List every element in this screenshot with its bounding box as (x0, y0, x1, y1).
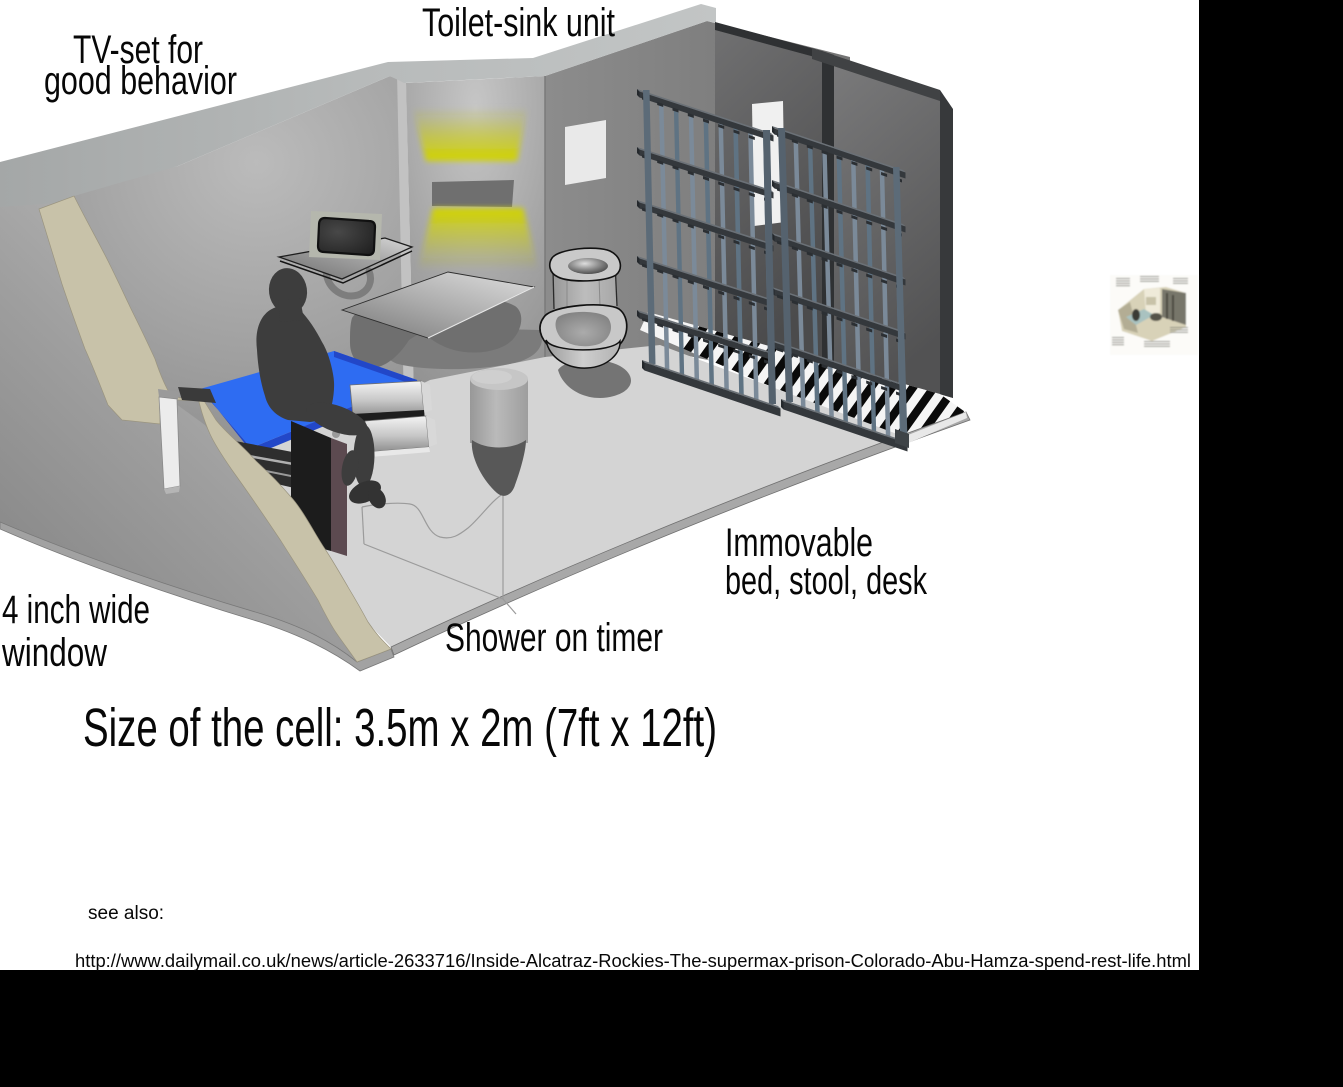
svg-text:4 inch wide: 4 inch wide (2, 588, 150, 632)
svg-text:good behavior: good behavior (44, 59, 237, 103)
svg-text:Shower on timer: Shower on timer (445, 616, 663, 660)
svg-text:Toilet-sink unit: Toilet-sink unit (422, 1, 615, 45)
svg-text:bed, stool, desk: bed, stool, desk (725, 559, 928, 603)
svg-text:http://www.dailymail.co.uk/new: http://www.dailymail.co.uk/news/article-… (75, 951, 1191, 971)
svg-text:Size of the cell: 3.5m x 2m (7: Size of the cell: 3.5m x 2m (7ft x 12ft) (83, 698, 717, 758)
svg-text:window: window (1, 631, 107, 675)
svg-text:see also:: see also: (88, 903, 164, 924)
